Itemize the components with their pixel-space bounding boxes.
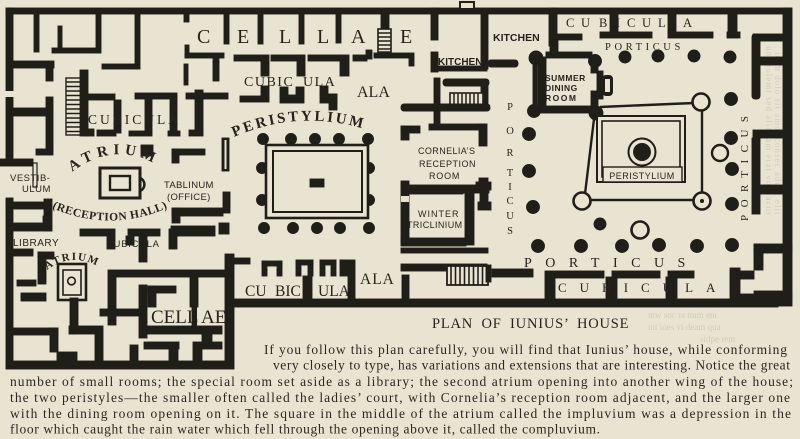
svg-text:RECEPTION: RECEPTION [419, 159, 476, 169]
svg-text:C: C [566, 16, 574, 30]
svg-text:ULUM: ULUM [22, 184, 51, 195]
svg-text:mw soc ra tium eni: mw soc ra tium eni [648, 310, 717, 320]
svg-text:with the dining room opening o: with the dining room opening on it. The … [10, 406, 791, 421]
svg-text:PORTICUS: PORTICUS [605, 42, 684, 53]
svg-text:PERISTYLIUM: PERISTYLIUM [609, 171, 675, 181]
svg-text:S: S [507, 226, 513, 237]
svg-text:A: A [351, 26, 366, 48]
svg-text:LIBRARY: LIBRARY [13, 238, 59, 249]
svg-text:CUBICULA: CUBICULA [88, 112, 181, 127]
svg-text:L: L [658, 16, 666, 30]
svg-text:PLAN OF IUNIUS’ HOUSE: PLAN OF IUNIUS’ HOUSE [432, 316, 629, 332]
svg-text:ALA: ALA [360, 271, 395, 288]
svg-text:number of small rooms; the spe: number of small rooms; the special room … [10, 374, 793, 389]
svg-text:L: L [317, 26, 329, 48]
svg-text:the two peristyles—the smaller: the two peristyles—the smaller often cal… [10, 390, 790, 405]
svg-text:AE: AE [201, 307, 226, 328]
svg-text:BIC: BIC [275, 283, 301, 300]
svg-text:ULA: ULA [303, 75, 336, 90]
svg-text:C: C [506, 196, 513, 207]
svg-text:I: I [508, 182, 512, 193]
svg-text:T: T [507, 168, 514, 179]
svg-text:VESTIB-: VESTIB- [10, 173, 50, 184]
svg-text:CUBIC: CUBIC [244, 75, 294, 90]
svg-text:C: C [197, 26, 210, 48]
svg-text:floor which caught the rain wa: floor which caught the rain water which … [10, 422, 600, 437]
svg-text:O: O [506, 126, 514, 137]
svg-text:CELL: CELL [151, 307, 199, 328]
svg-text:ROOM: ROOM [429, 171, 460, 181]
svg-text:PORTICUS: PORTICUS [739, 108, 751, 221]
svg-text:CU: CU [245, 283, 267, 300]
svg-text:CORNELIA’S: CORNELIA’S [418, 146, 475, 156]
svg-text:U: U [642, 16, 651, 30]
svg-text:TABLINUM: TABLINUM [164, 180, 214, 191]
svg-text:C: C [627, 16, 635, 30]
svg-text:I: I [616, 16, 620, 30]
svg-text:E: E [400, 26, 412, 48]
svg-text:CUBICULA: CUBICULA [106, 239, 160, 250]
svg-text:If you follow this plan carefu: If you follow this plan carefully, you w… [264, 342, 787, 357]
svg-text:nit loes vi deam qua: nit loes vi deam qua [648, 322, 720, 332]
svg-text:WINTER: WINTER [418, 209, 460, 219]
svg-text:R: R [506, 148, 513, 159]
svg-text:DINING: DINING [545, 83, 578, 93]
svg-text:CUBICULA: CUBICULA [558, 280, 728, 295]
svg-text:PORTICUS: PORTICUS [524, 256, 699, 271]
svg-text:KITCHEN: KITCHEN [438, 57, 482, 68]
svg-text:U: U [506, 211, 514, 222]
svg-text:ULA: ULA [318, 283, 351, 300]
svg-text:TRICLINIUM: TRICLINIUM [407, 220, 463, 230]
svg-text:(OFFICE): (OFFICE) [167, 192, 211, 203]
svg-text:L: L [279, 26, 291, 48]
svg-text:KITCHEN: KITCHEN [493, 32, 540, 44]
svg-text:P: P [507, 102, 513, 113]
svg-text:B: B [599, 16, 607, 30]
svg-text:ALA: ALA [357, 84, 390, 101]
svg-text:very closely to type, has vari: very closely to type, has variations and… [273, 358, 790, 373]
svg-text:ROOM: ROOM [545, 93, 577, 103]
svg-text:SUMMER: SUMMER [545, 73, 586, 83]
svg-text:E: E [237, 26, 249, 48]
svg-text:A: A [683, 16, 692, 30]
svg-text:U: U [581, 16, 590, 30]
